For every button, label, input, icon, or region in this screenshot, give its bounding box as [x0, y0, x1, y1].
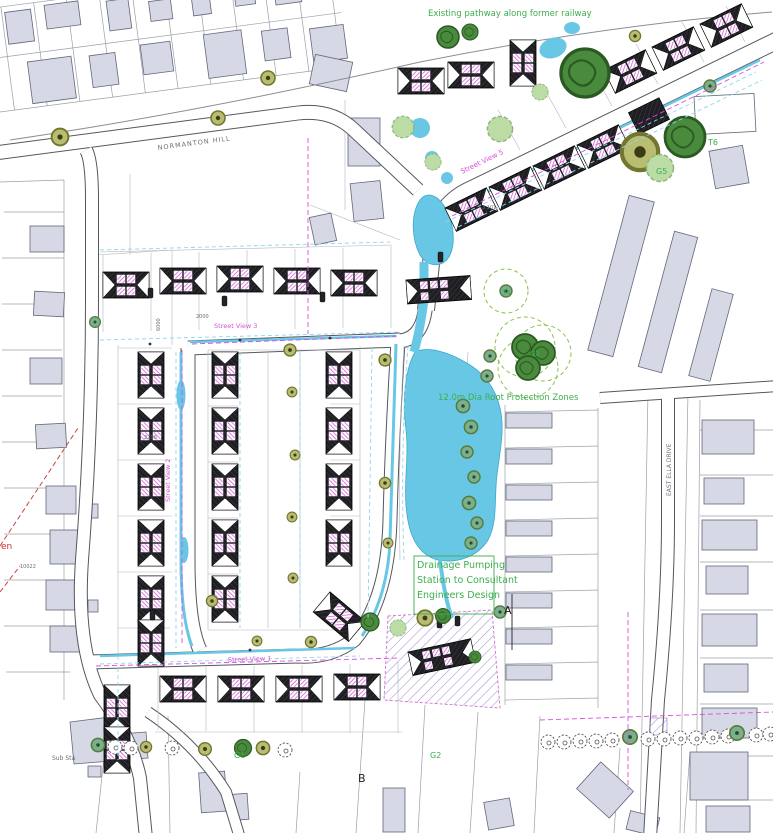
label-t4: T4	[501, 289, 511, 297]
label-g2: G2	[430, 751, 441, 760]
label-section-a: A	[504, 604, 512, 617]
dim-2000: 2000	[196, 314, 209, 320]
label-street-view-3: Street View 3	[214, 322, 257, 330]
label-street-view-2: Street View 2	[164, 459, 172, 502]
site-plan-drawing: Existing pathway along former railway NO…	[0, 0, 773, 833]
label-pumping-2: Station to Consultant	[417, 575, 518, 586]
label-g1: G1	[234, 751, 245, 760]
site-plan-canvas: Existing pathway along former railway NO…	[0, 0, 773, 833]
label-t6: T6	[707, 138, 718, 147]
label-root-protection: 12.0m Dia Root Protection Zones	[438, 393, 579, 403]
label-sub-station: Sub Sta	[52, 755, 75, 762]
label-section-b: B	[358, 772, 366, 785]
label-edge-fragment: en	[1, 542, 12, 552]
label-g5: G5	[656, 167, 667, 176]
label-east-ella-drive: EAST ELLA DRIVE	[666, 443, 673, 496]
dim-2700: 2700	[144, 435, 157, 441]
dim-6000: 6000	[156, 318, 162, 331]
dim-3101: 3.101	[482, 205, 496, 211]
label-pumping-1: Drainage Pumping	[417, 560, 505, 571]
label-g3: G3	[530, 350, 540, 358]
label-street-view-1: Street View 1	[228, 654, 272, 664]
dim-10022: 10022	[20, 564, 36, 570]
label-existing-pathway: Existing pathway along former railway	[428, 9, 592, 19]
label-pumping-3: Engineers Design	[417, 590, 500, 601]
